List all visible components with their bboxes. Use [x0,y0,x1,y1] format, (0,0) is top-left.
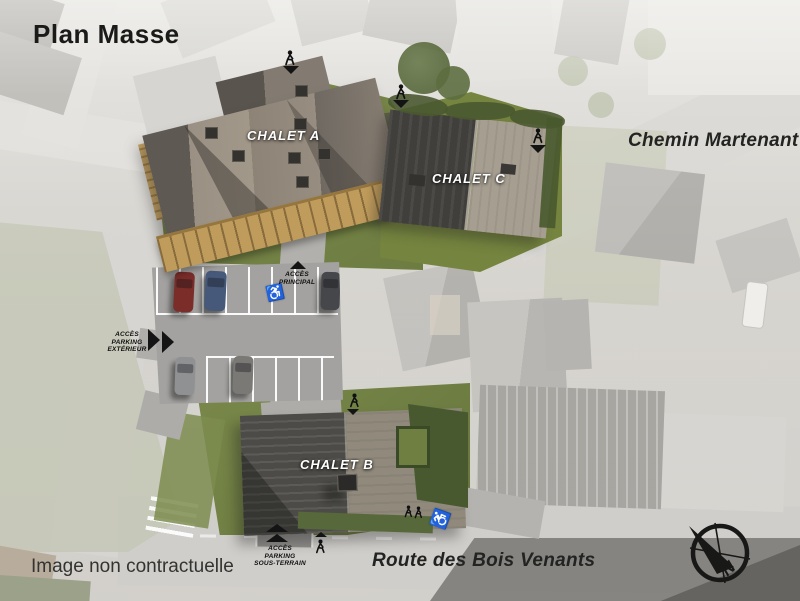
arrow-up-icon [266,534,288,542]
chimney [296,176,309,188]
chalet-a-building [145,60,410,280]
road-label-chemin-martenant: Chemin Martenant [628,130,799,152]
arrow-down-icon [393,100,409,108]
pedestrian-icon [413,506,424,519]
access-line: ACCÈS [104,331,150,339]
pedestrian-icon [531,128,545,144]
page-title: Plan Masse [33,19,180,50]
roof-dark-half [379,110,478,231]
arrow-right-icon [162,331,174,353]
access-line: PRINCIPAL [272,279,322,287]
access-line: SOUS-TERRAIN [252,560,308,568]
chalet-c-label: CHALET C [432,171,506,186]
parked-car-gray [174,357,195,396]
access-line: EXTÉRIEUR [104,346,150,354]
arrow-up-icon [315,532,327,537]
arrow-up-icon [290,261,306,269]
garden-square [396,426,430,468]
roof-vent [409,174,426,187]
chimney [288,152,301,164]
access-parking-exterieur-label: ACCÈS PARKING EXTÉRIEUR [104,331,150,354]
chimney [337,474,358,492]
tree [436,66,470,100]
chalet-a-label: CHALET A [247,128,320,143]
pedestrian-icon [394,84,408,100]
access-parking-sous-terrain-label: ACCÈS PARKING SOUS-TERRAIN [252,545,308,568]
chalet-b-label: CHALET B [300,457,374,472]
access-principal-label: ACCÈS PRINCIPAL [272,271,322,286]
parked-car-gray [232,356,253,395]
pedestrian-icon [283,50,297,66]
road-label-route-des-bois-venants: Route des Bois Venants [372,550,595,572]
disclaimer-text: Image non contractuelle [31,556,234,578]
arrow-down-icon [347,409,359,415]
access-line: ACCÈS [272,271,322,279]
access-line: PARKING [252,553,308,561]
site-plan-image: ♿ [0,0,800,601]
access-line: ACCÈS [252,545,308,553]
pedestrian-icon [348,393,361,408]
pedestrian-icon [314,539,327,554]
chimney [318,148,331,160]
arrow-down-icon [283,66,299,74]
chimney [205,127,218,139]
arrow-right-icon [148,329,160,351]
arrow-down-icon [530,145,546,153]
access-line: PARKING [104,339,150,347]
compass-north-icon: N [682,515,762,595]
chimney [295,85,308,97]
arrow-up-icon [266,524,288,532]
chimney [232,150,245,162]
parking-lines-bottom [206,356,334,404]
hedge [445,102,515,120]
